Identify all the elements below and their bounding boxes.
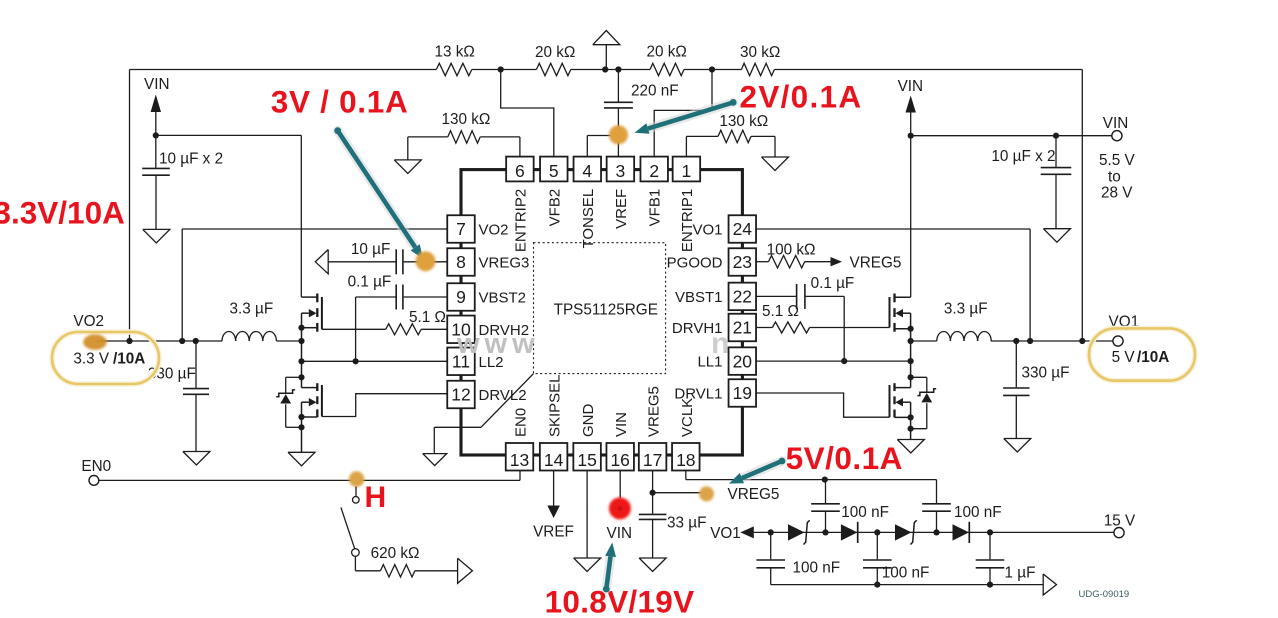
svg-text:PGOOD: PGOOD bbox=[667, 255, 723, 272]
svg-text:0.1 µF: 0.1 µF bbox=[811, 275, 855, 292]
svg-text:ENTRIP2: ENTRIP2 bbox=[512, 189, 529, 252]
svg-text:5 V: 5 V bbox=[1112, 349, 1136, 366]
svg-text:4: 4 bbox=[582, 161, 592, 181]
svg-text:16: 16 bbox=[610, 450, 629, 470]
svg-text:VCLK: VCLK bbox=[679, 398, 696, 437]
svg-text:5V/0.1A: 5V/0.1A bbox=[786, 440, 903, 476]
svg-text:VBST1: VBST1 bbox=[675, 289, 723, 306]
svg-text:100 nF: 100 nF bbox=[841, 504, 889, 521]
svg-text:7: 7 bbox=[456, 219, 466, 239]
svg-text:5.5 V: 5.5 V bbox=[1099, 152, 1136, 169]
svg-text:13: 13 bbox=[510, 450, 529, 470]
svg-text:5.1 Ω: 5.1 Ω bbox=[409, 309, 446, 326]
svg-text:15: 15 bbox=[577, 450, 596, 470]
svg-text:DRVL2: DRVL2 bbox=[479, 387, 527, 404]
svg-text:VO1: VO1 bbox=[710, 525, 741, 542]
svg-text:100 nF: 100 nF bbox=[882, 565, 930, 582]
svg-text:3.3V/10A: 3.3V/10A bbox=[0, 195, 125, 231]
svg-text:330 µF: 330 µF bbox=[1022, 365, 1070, 382]
svg-text:28 V: 28 V bbox=[1101, 185, 1133, 202]
svg-text:/10A: /10A bbox=[113, 351, 145, 368]
svg-text:H: H bbox=[365, 481, 387, 514]
svg-text:19: 19 bbox=[733, 383, 752, 403]
svg-text:VIN: VIN bbox=[613, 412, 630, 437]
svg-text:17: 17 bbox=[643, 450, 662, 470]
svg-text:VREG3: VREG3 bbox=[479, 255, 530, 272]
svg-text:3.3 V: 3.3 V bbox=[73, 351, 113, 368]
svg-text:20 kΩ: 20 kΩ bbox=[535, 44, 575, 61]
svg-text:20 kΩ: 20 kΩ bbox=[647, 44, 687, 61]
svg-text:14: 14 bbox=[544, 450, 564, 470]
svg-text:VREF: VREF bbox=[613, 189, 630, 229]
svg-text:13 kΩ: 13 kΩ bbox=[435, 44, 475, 61]
svg-text:3V / 0.1A: 3V / 0.1A bbox=[271, 84, 409, 120]
svg-text:23: 23 bbox=[733, 252, 752, 272]
svg-text:21: 21 bbox=[733, 318, 752, 338]
svg-text:620 kΩ: 620 kΩ bbox=[371, 545, 420, 562]
svg-text:VREG5: VREG5 bbox=[728, 486, 780, 503]
svg-text:TPS51125RGE: TPS51125RGE bbox=[554, 302, 658, 319]
svg-text:to: to bbox=[1108, 169, 1121, 186]
svg-text:VIN: VIN bbox=[898, 78, 924, 95]
svg-text:10 µF: 10 µF bbox=[351, 241, 390, 258]
svg-text:2V/0.1A: 2V/0.1A bbox=[740, 79, 863, 115]
svg-text:ENTRIP1: ENTRIP1 bbox=[679, 189, 696, 252]
svg-text:100 nF: 100 nF bbox=[793, 560, 841, 577]
svg-text:8: 8 bbox=[456, 252, 466, 272]
svg-text:20: 20 bbox=[733, 351, 753, 371]
svg-text:www: www bbox=[456, 328, 540, 360]
svg-text:6: 6 bbox=[515, 161, 525, 181]
svg-text:2: 2 bbox=[649, 161, 659, 181]
svg-text:100 nF: 100 nF bbox=[954, 504, 1002, 521]
svg-text:0.1 µF: 0.1 µF bbox=[348, 274, 392, 291]
svg-text:/10A: /10A bbox=[1137, 349, 1169, 366]
svg-text:5: 5 bbox=[549, 161, 559, 181]
svg-text:VO2: VO2 bbox=[479, 222, 509, 239]
svg-text:15 V: 15 V bbox=[1104, 513, 1136, 530]
svg-text:GND: GND bbox=[580, 404, 597, 438]
svg-text:SKIPSEL: SKIPSEL bbox=[547, 374, 564, 437]
svg-text:100 kΩ: 100 kΩ bbox=[767, 242, 816, 259]
svg-text:24: 24 bbox=[733, 219, 753, 239]
svg-text:VO1: VO1 bbox=[692, 222, 722, 239]
svg-text:220 nF: 220 nF bbox=[631, 83, 679, 100]
svg-text:VIN: VIN bbox=[1103, 115, 1129, 132]
svg-text:18: 18 bbox=[676, 450, 695, 470]
svg-text:VFB1: VFB1 bbox=[647, 189, 664, 227]
svg-text:3.3 µF: 3.3 µF bbox=[944, 301, 988, 318]
svg-text:130 kΩ: 130 kΩ bbox=[442, 111, 491, 128]
svg-text:EN0: EN0 bbox=[81, 458, 111, 475]
svg-text:UDG-09019: UDG-09019 bbox=[1079, 589, 1130, 600]
svg-text:130 kΩ: 130 kΩ bbox=[719, 113, 768, 130]
svg-text:1: 1 bbox=[682, 161, 692, 181]
svg-text:3: 3 bbox=[616, 161, 626, 181]
svg-text:VIN: VIN bbox=[144, 76, 170, 93]
svg-text:EN0: EN0 bbox=[513, 408, 530, 437]
svg-text:VBST2: VBST2 bbox=[479, 290, 527, 307]
svg-text:VFB2: VFB2 bbox=[546, 189, 563, 227]
svg-text:VO2: VO2 bbox=[73, 313, 104, 330]
svg-text:10 µF x 2: 10 µF x 2 bbox=[159, 151, 223, 168]
svg-text:30 kΩ: 30 kΩ bbox=[740, 44, 780, 61]
svg-text:22: 22 bbox=[733, 287, 752, 307]
svg-text:VREG5: VREG5 bbox=[646, 386, 663, 437]
svg-text:1 µF: 1 µF bbox=[1005, 565, 1036, 582]
svg-text:VIN: VIN bbox=[607, 525, 633, 542]
svg-text:VREF: VREF bbox=[533, 524, 574, 541]
svg-text:33 µF: 33 µF bbox=[667, 515, 706, 532]
svg-text:3.3 µF: 3.3 µF bbox=[230, 301, 274, 318]
svg-text:9: 9 bbox=[456, 287, 466, 307]
svg-text:n: n bbox=[711, 327, 729, 360]
svg-text:12: 12 bbox=[451, 385, 470, 405]
svg-text:10.8V/19V: 10.8V/19V bbox=[545, 584, 695, 618]
svg-text:10 µF x 2: 10 µF x 2 bbox=[991, 148, 1055, 165]
svg-text:TONSEL: TONSEL bbox=[580, 189, 597, 249]
svg-text:VREG5: VREG5 bbox=[850, 255, 902, 272]
svg-text:5.1 Ω: 5.1 Ω bbox=[762, 303, 799, 320]
